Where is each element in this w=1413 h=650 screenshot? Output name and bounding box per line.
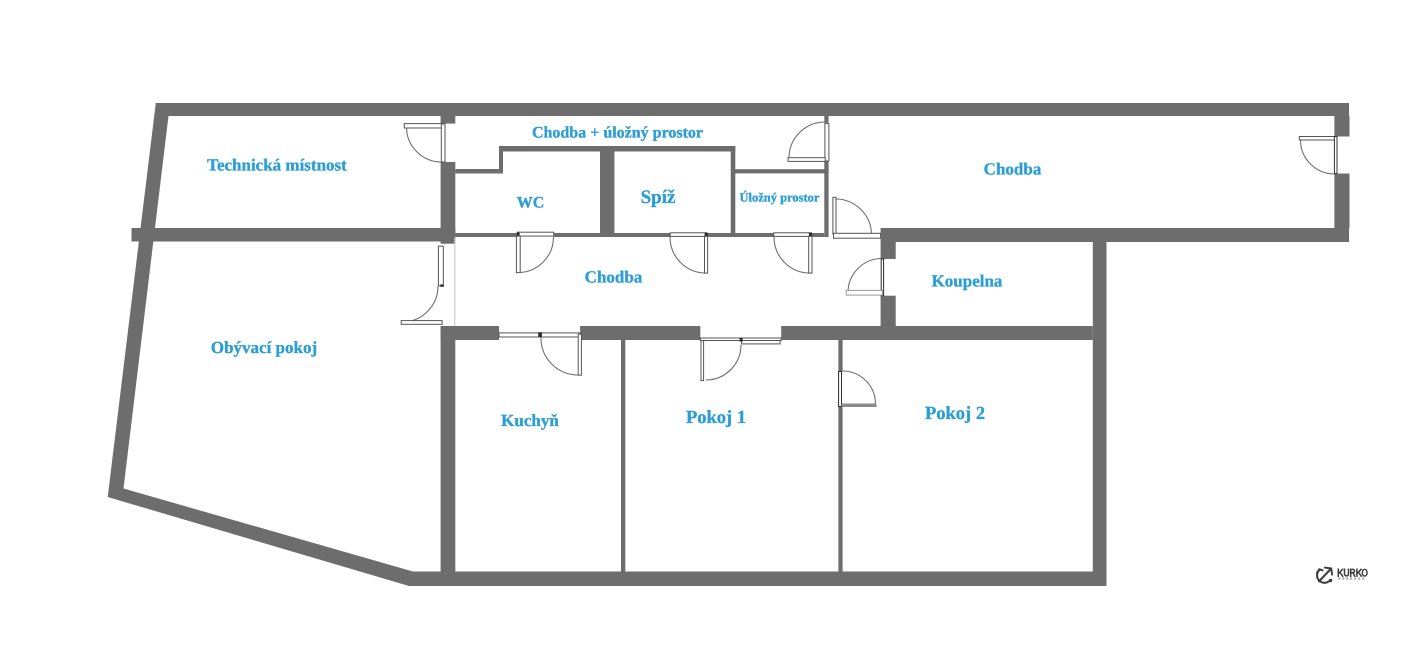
svg-text:Technická místnost: Technická místnost	[207, 156, 347, 175]
svg-text:Kuchyň: Kuchyň	[501, 411, 559, 430]
svg-text:Úložný prostor: Úložný prostor	[740, 191, 820, 205]
svg-text:Chodba: Chodba	[585, 268, 643, 287]
svg-text:Chodba: Chodba	[984, 160, 1042, 179]
svg-text:Spíž: Spíž	[641, 187, 676, 208]
svg-text:Koupelna: Koupelna	[932, 272, 1003, 291]
svg-text:Pokoj 2: Pokoj 2	[925, 404, 985, 424]
svg-text:Obývací pokoj: Obývací pokoj	[211, 338, 317, 357]
svg-text:Pokoj 1: Pokoj 1	[686, 408, 746, 428]
svg-text:Chodba + úložný prostor: Chodba + úložný prostor	[532, 125, 703, 142]
svg-text:WC: WC	[517, 195, 545, 212]
